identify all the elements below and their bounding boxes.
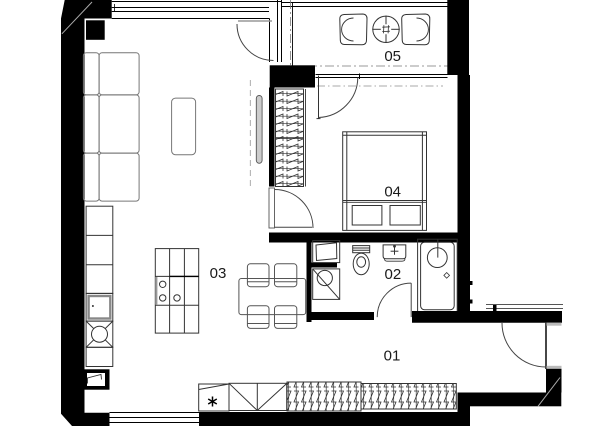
svg-text:05: 05 xyxy=(384,48,401,65)
svg-text:01: 01 xyxy=(384,348,401,365)
svg-text:03: 03 xyxy=(210,265,227,282)
svg-text:04: 04 xyxy=(384,184,401,201)
svg-text:02: 02 xyxy=(385,266,402,283)
